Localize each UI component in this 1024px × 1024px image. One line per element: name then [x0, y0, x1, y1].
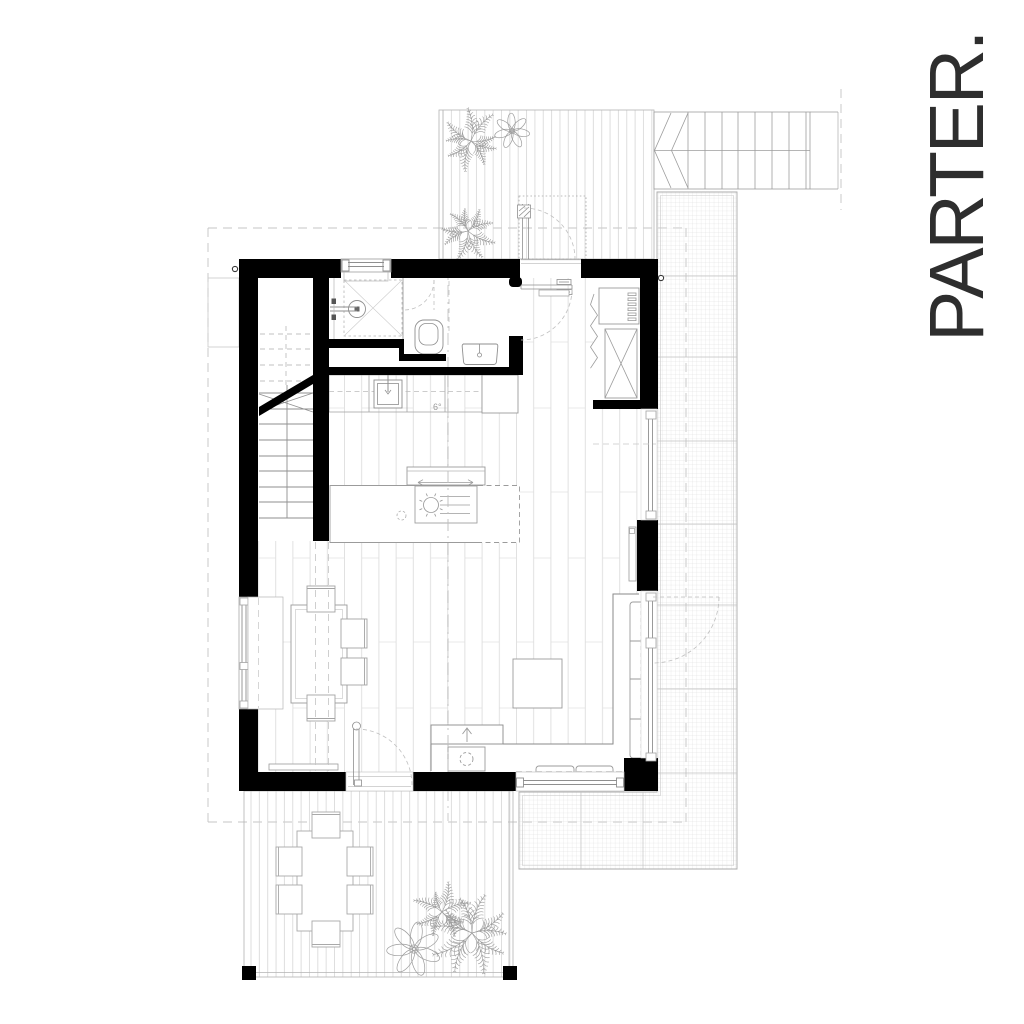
svg-text:6°: 6°: [433, 402, 442, 412]
